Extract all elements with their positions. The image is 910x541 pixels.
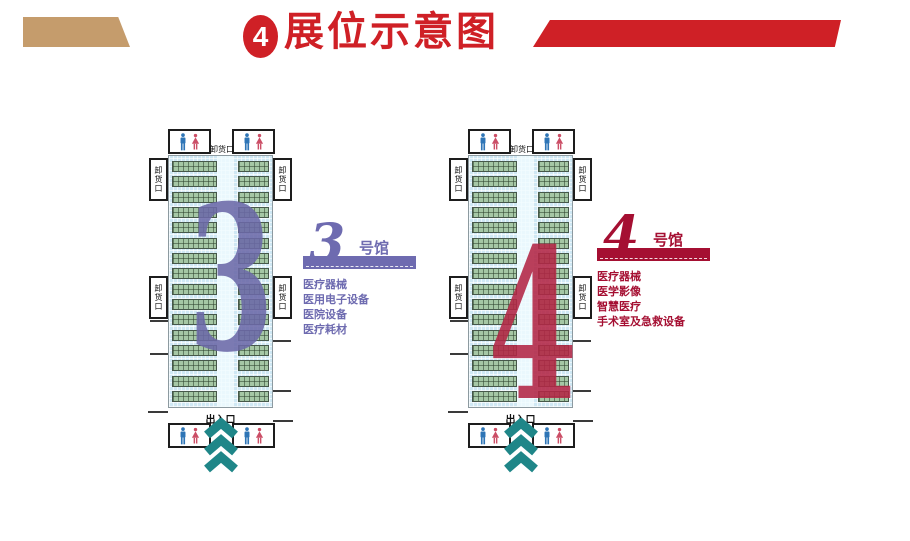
hall-4-banner (597, 248, 710, 261)
male-icon (543, 427, 551, 445)
category-item: 智慧医疗 (597, 300, 685, 315)
female-icon (191, 427, 200, 445)
wall-line (450, 320, 468, 322)
booth-block (472, 176, 517, 187)
gate-text: 卸货口 (577, 166, 588, 193)
male-icon (543, 133, 551, 151)
gate-text: 卸货口 (277, 166, 288, 193)
category-item: 医用电子设备 (303, 293, 369, 308)
wall-line (448, 411, 468, 413)
gate-text: 卸货口 (153, 284, 164, 311)
male-icon (479, 427, 487, 445)
female-icon (491, 427, 500, 445)
booth-block (538, 176, 569, 187)
hall-4-diagram: 4 卸货口 卸货口 卸货口 卸货口 卸货口 出入口 (448, 128, 598, 478)
wall-line (148, 411, 168, 413)
unloading-gate-box: 卸货口 (449, 158, 468, 201)
booth-block (538, 161, 569, 172)
category-item: 医疗器械 (597, 270, 685, 285)
unloading-gate-label: 卸货口 (203, 144, 241, 155)
wall-line (450, 353, 468, 355)
female-icon (255, 133, 264, 151)
hall-3-categories: 医疗器械 医用电子设备 医院设备 医疗耗材 (303, 278, 369, 338)
male-icon (243, 133, 251, 151)
wall-line (273, 420, 293, 422)
wall-line (150, 353, 168, 355)
category-item: 医疗耗材 (303, 323, 369, 338)
gate-text: 卸货口 (577, 284, 588, 311)
section-number-badge: 4 (243, 15, 278, 58)
gate-text: 卸货口 (277, 284, 288, 311)
unloading-gate-box: 卸货口 (573, 276, 592, 319)
female-icon (555, 133, 564, 151)
booth-block (472, 192, 517, 203)
wall-line (273, 340, 291, 342)
unloading-gate-box: 卸货口 (149, 276, 168, 319)
category-item: 医学影像 (597, 285, 685, 300)
floor-plan-page: 4 展位示意图 3 卸货口 卸货口 卸货口 卸货口 卸货口 出入口 (0, 0, 910, 541)
booth-row (472, 192, 569, 203)
wall-line (573, 390, 591, 392)
booth-block (472, 161, 517, 172)
male-icon (179, 427, 187, 445)
wall-line (573, 340, 591, 342)
category-item: 医院设备 (303, 308, 369, 323)
booth-row (472, 161, 569, 172)
gate-text: 卸货口 (153, 166, 164, 193)
up-arrows-icon (203, 418, 239, 479)
female-icon (555, 427, 564, 445)
hall-3-diagram: 3 卸货口 卸货口 卸货口 卸货口 卸货口 出入口 (148, 128, 298, 478)
page-title: 展位示意图 (284, 10, 499, 54)
unloading-gate-box: 卸货口 (149, 158, 168, 201)
hall-3-suffix: 号馆 (359, 237, 389, 258)
category-item: 医疗器械 (303, 278, 369, 293)
wall-line (573, 420, 593, 422)
booth-block (538, 192, 569, 203)
female-icon (191, 133, 200, 151)
male-icon (243, 427, 251, 445)
header-tan-ribbon (23, 17, 130, 47)
booth-row (472, 176, 569, 187)
male-icon (179, 133, 187, 151)
gate-text: 卸货口 (453, 284, 464, 311)
male-icon (479, 133, 487, 151)
unloading-gate-box: 卸货口 (449, 276, 468, 319)
unloading-gate-box: 卸货口 (273, 276, 292, 319)
unloading-gate-label: 卸货口 (503, 144, 541, 155)
hall-3-number: 3 (188, 200, 253, 360)
hall-4-suffix: 号馆 (653, 229, 683, 250)
category-item: 手术室及急救设备 (597, 315, 685, 330)
wall-line (273, 390, 291, 392)
up-arrows-icon (503, 418, 539, 479)
female-icon (491, 133, 500, 151)
header-red-ribbon (533, 20, 841, 47)
hall-3-banner (303, 256, 416, 269)
unloading-gate-box: 卸货口 (273, 158, 292, 201)
female-icon (255, 427, 264, 445)
wall-line (150, 320, 168, 322)
hall-4-categories: 医疗器械 医学影像 智慧医疗 手术室及急救设备 (597, 270, 685, 330)
hall-4-number: 4 (488, 246, 553, 406)
gate-text: 卸货口 (453, 166, 464, 193)
unloading-gate-box: 卸货口 (573, 158, 592, 201)
